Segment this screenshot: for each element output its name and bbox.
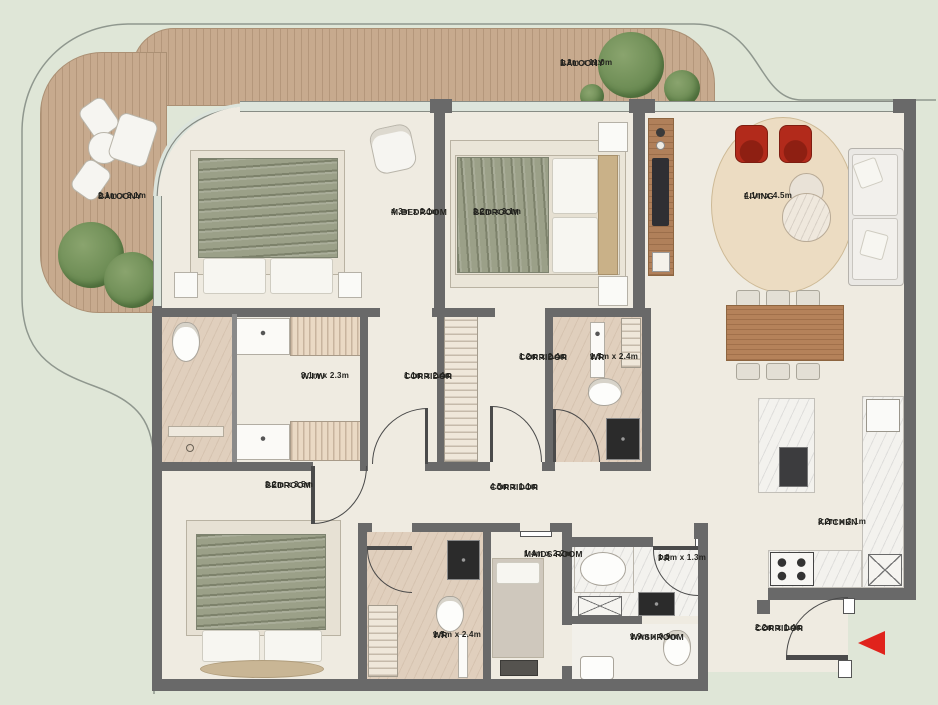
bedroom-top-headboard bbox=[598, 155, 618, 275]
room-dims: 4.1m x 4.5m bbox=[744, 191, 792, 201]
sliding-door bbox=[520, 531, 552, 537]
red-armchair bbox=[735, 125, 768, 163]
washing-machine bbox=[578, 596, 622, 616]
nightstand bbox=[338, 272, 362, 298]
wiw-closet bbox=[290, 421, 366, 461]
door-leaf bbox=[367, 546, 412, 550]
master-bed-pillow bbox=[270, 258, 333, 294]
wall bbox=[437, 308, 444, 471]
room-dims: 3.2m x 3.5m bbox=[265, 480, 313, 490]
wall bbox=[562, 616, 642, 624]
wall bbox=[694, 523, 708, 539]
nightstand bbox=[174, 272, 198, 298]
bedroom-top-pillow bbox=[552, 217, 598, 273]
toilet bbox=[172, 322, 200, 362]
door-leaf bbox=[490, 406, 493, 462]
wall bbox=[545, 308, 553, 471]
room-dims: 1.2m x 2.4m bbox=[519, 352, 567, 362]
wall bbox=[158, 462, 313, 471]
toilet bbox=[588, 378, 622, 406]
wall bbox=[412, 523, 520, 532]
wr-top-vanity bbox=[590, 322, 605, 378]
dining-chair bbox=[736, 363, 760, 380]
red-armchair bbox=[779, 125, 812, 163]
wall bbox=[633, 101, 645, 315]
speaker-icon bbox=[656, 141, 665, 150]
wr-counter bbox=[458, 634, 468, 678]
bedroom-bottom-pillow bbox=[264, 630, 322, 662]
bedroom-bottom-pillow bbox=[202, 630, 260, 662]
pr-sink bbox=[580, 552, 626, 586]
wall bbox=[562, 666, 572, 688]
room-dims: 3.2m x 3.1m bbox=[818, 517, 866, 527]
wall bbox=[562, 537, 653, 547]
window-left bbox=[153, 196, 162, 308]
window-band-top bbox=[240, 101, 904, 112]
bed-end-rug bbox=[200, 660, 324, 678]
wall-right bbox=[904, 101, 916, 600]
kitchen-sink bbox=[866, 399, 900, 432]
master-bed-blanket bbox=[198, 158, 338, 258]
wall bbox=[425, 462, 490, 471]
kitchen-appliance bbox=[868, 554, 902, 586]
nightstand bbox=[598, 122, 628, 152]
tv-screen bbox=[652, 158, 669, 226]
wall-left bbox=[152, 306, 162, 688]
room-dims: 1.5m x 2.4m bbox=[433, 630, 481, 640]
washroom-sink bbox=[580, 656, 614, 680]
island-sink bbox=[779, 447, 808, 487]
room-dims: 1.8m x 1.3m bbox=[658, 553, 706, 563]
wall bbox=[360, 308, 368, 471]
wall bbox=[483, 532, 491, 686]
bedroom-bottom-blanket bbox=[196, 534, 326, 630]
room-dims: 1.1m x 2.4m bbox=[404, 371, 452, 381]
door-leaf bbox=[425, 408, 428, 464]
shower bbox=[638, 592, 675, 616]
wall bbox=[358, 523, 367, 686]
door-jamb bbox=[838, 660, 852, 678]
tree bbox=[104, 252, 160, 308]
room-dims: 4.3m x 3.1m bbox=[391, 207, 439, 217]
speaker-icon bbox=[656, 128, 665, 137]
door-leaf bbox=[553, 409, 556, 462]
wr-bottom-closet bbox=[368, 605, 398, 677]
wiw-dresser bbox=[236, 318, 290, 355]
maids-table bbox=[500, 660, 538, 676]
room-dims: 1.5m x 2.4m bbox=[590, 352, 638, 362]
wall bbox=[158, 308, 380, 317]
room-dims: 3.2m x 3.1m bbox=[473, 207, 521, 217]
room-dims: 2.2m x 1.4m bbox=[755, 623, 803, 633]
dining-table bbox=[726, 305, 844, 361]
maids-pillow bbox=[496, 562, 540, 584]
wall-bottom bbox=[152, 679, 708, 691]
wall bbox=[642, 308, 651, 471]
wiw-dresser bbox=[236, 424, 290, 460]
shower bbox=[447, 540, 480, 580]
hall-closet bbox=[444, 314, 478, 462]
room-dims: 3.1m x 2.3m bbox=[301, 371, 349, 381]
door-leaf bbox=[311, 466, 315, 524]
door-leaf bbox=[653, 546, 698, 550]
door-jamb bbox=[843, 598, 855, 614]
room-dims: 1.2m x 11.0m bbox=[560, 58, 612, 68]
room-dims: 4.5m x 1.1m bbox=[490, 482, 538, 492]
console-decor bbox=[652, 252, 670, 272]
dining-chair bbox=[796, 363, 820, 380]
room-dims: 1.9m x 0.9m bbox=[630, 632, 678, 642]
toilet bbox=[436, 596, 464, 632]
floor-plan: BALCONY 2.1m x 3.1m BALCONY 1.2m x 11.0m… bbox=[0, 0, 938, 705]
nightstand bbox=[598, 276, 628, 306]
wall bbox=[562, 523, 572, 625]
dining-chair bbox=[766, 363, 790, 380]
master-bed-pillow bbox=[203, 258, 266, 294]
shower-head-icon bbox=[186, 444, 194, 452]
stove bbox=[770, 552, 814, 586]
shower bbox=[606, 418, 640, 460]
wiw-closet bbox=[290, 316, 366, 356]
wall bbox=[757, 600, 770, 614]
entrance-arrow-icon bbox=[858, 631, 885, 655]
bath-bench bbox=[168, 426, 224, 437]
room-dims: 1.4m x 2.2m bbox=[524, 549, 572, 559]
room-dims: 2.1m x 3.1m bbox=[98, 191, 146, 201]
bedroom-top-pillow bbox=[552, 158, 598, 214]
wall bbox=[232, 314, 237, 462]
